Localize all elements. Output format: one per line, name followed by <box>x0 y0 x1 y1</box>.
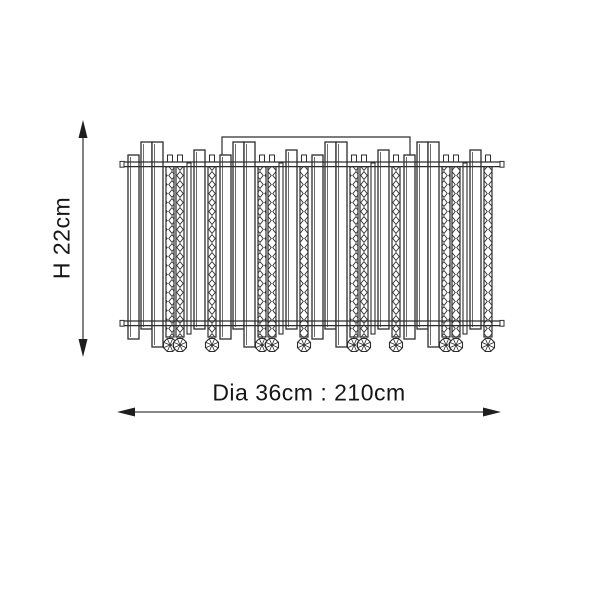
crystal-beads <box>164 337 495 352</box>
fixture-bars <box>128 142 492 347</box>
width-dimension-arrow <box>117 408 501 417</box>
height-dimension-label: H 22cm <box>49 197 76 279</box>
ceiling-light-technical-drawing <box>0 0 600 600</box>
dimension-drawing-canvas: H 22cm Dia 36cm : 210cm <box>0 0 600 600</box>
height-dimension-arrow <box>79 120 88 357</box>
width-dimension-label: Dia 36cm : 210cm <box>212 380 405 407</box>
